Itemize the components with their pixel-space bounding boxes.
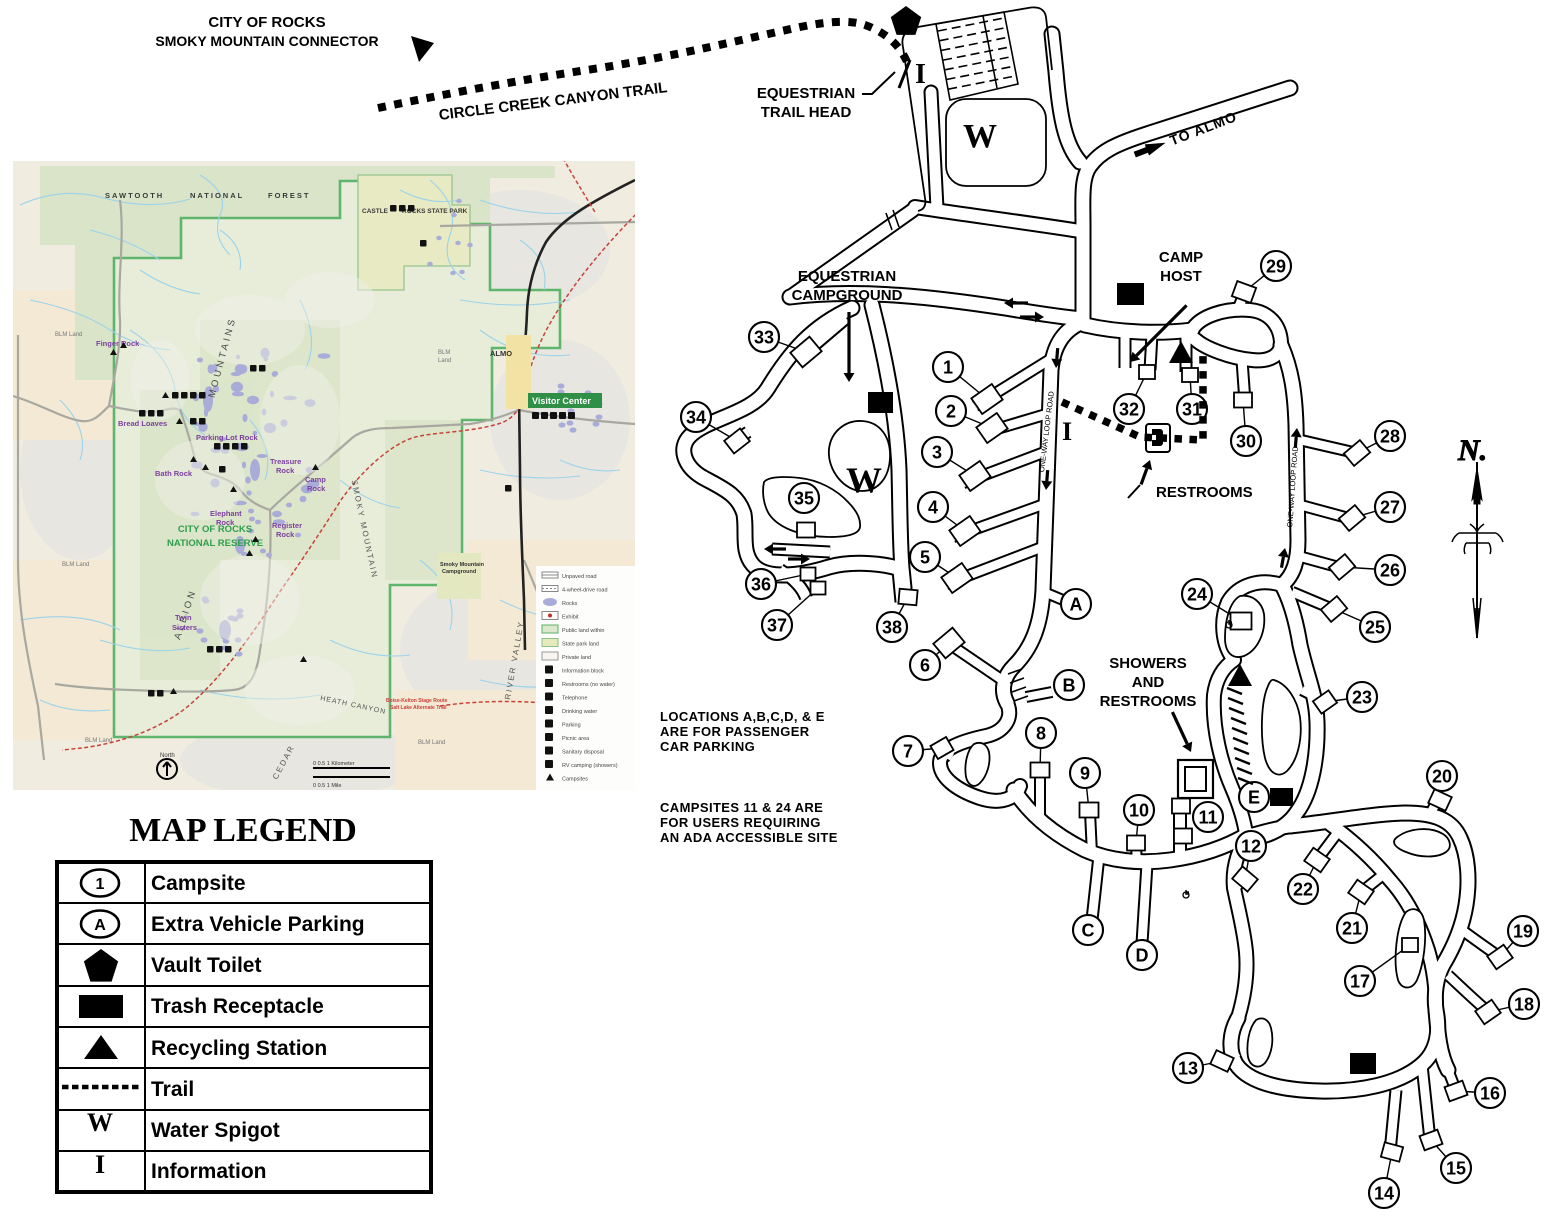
svg-text:A: A bbox=[1070, 595, 1083, 615]
svg-text:Parking: Parking bbox=[562, 723, 581, 729]
svg-text:Parking Lot Rock: Parking Lot Rock bbox=[196, 433, 259, 442]
svg-text:34: 34 bbox=[686, 408, 706, 428]
svg-text:33: 33 bbox=[754, 328, 774, 348]
svg-text:Campground: Campground bbox=[442, 569, 476, 575]
svg-text:Water Spigot: Water Spigot bbox=[151, 1119, 280, 1142]
svg-text:26: 26 bbox=[1380, 561, 1400, 581]
svg-text:Private land: Private land bbox=[562, 655, 591, 661]
svg-text:Information block: Information block bbox=[562, 669, 604, 675]
svg-text:9: 9 bbox=[1080, 764, 1090, 784]
svg-text:Rock: Rock bbox=[276, 530, 295, 539]
svg-text:State park land: State park land bbox=[562, 642, 599, 648]
svg-text:6: 6 bbox=[920, 656, 930, 676]
svg-text:Sanitary disposal: Sanitary disposal bbox=[562, 750, 604, 756]
svg-text:23: 23 bbox=[1352, 688, 1372, 708]
svg-text:Treasure: Treasure bbox=[270, 457, 301, 466]
svg-text:Smoky Mountain: Smoky Mountain bbox=[440, 562, 485, 568]
svg-text:I: I bbox=[915, 59, 926, 90]
svg-text:AN ADA ACCESSIBLE SITE: AN ADA ACCESSIBLE SITE bbox=[660, 830, 838, 845]
svg-text:Elephant: Elephant bbox=[210, 509, 242, 518]
svg-text:AND: AND bbox=[1132, 674, 1165, 691]
svg-text:Public land within: Public land within bbox=[562, 628, 605, 634]
svg-text:BLM: BLM bbox=[438, 350, 450, 356]
svg-text:SAWTOOTH: SAWTOOTH bbox=[105, 191, 164, 200]
svg-text:CITY OF ROCKS: CITY OF ROCKS bbox=[178, 524, 252, 535]
svg-text:CASTLE: CASTLE bbox=[362, 208, 389, 215]
svg-text:Telephone: Telephone bbox=[562, 696, 587, 702]
svg-text:Salt Lake Alternate Trail: Salt Lake Alternate Trail bbox=[390, 705, 447, 711]
svg-text:Register: Register bbox=[272, 521, 302, 530]
svg-text:10: 10 bbox=[1129, 801, 1149, 821]
svg-text:Rocks: Rocks bbox=[562, 601, 578, 607]
svg-text:Unpaved road: Unpaved road bbox=[562, 574, 597, 580]
svg-text:16: 16 bbox=[1480, 1084, 1500, 1104]
svg-text:Restrooms (no water): Restrooms (no water) bbox=[562, 682, 615, 688]
svg-text:37: 37 bbox=[767, 616, 787, 636]
svg-text:N.: N. bbox=[1457, 434, 1487, 467]
svg-text:C: C bbox=[1082, 921, 1095, 941]
svg-text:1: 1 bbox=[943, 358, 953, 378]
svg-text:Boise-Kelton Stage Route: Boise-Kelton Stage Route bbox=[386, 698, 448, 704]
svg-text:5: 5 bbox=[920, 548, 930, 568]
svg-text:Bath Rock: Bath Rock bbox=[155, 469, 193, 478]
svg-text:TRAIL HEAD: TRAIL HEAD bbox=[761, 104, 852, 121]
svg-text:12: 12 bbox=[1241, 837, 1261, 857]
svg-text:BLM Land: BLM Land bbox=[418, 740, 445, 746]
svg-text:14: 14 bbox=[1374, 1184, 1394, 1204]
svg-text:35: 35 bbox=[794, 489, 814, 509]
svg-text:BLM Land: BLM Land bbox=[85, 738, 112, 744]
svg-text:28: 28 bbox=[1380, 427, 1400, 447]
svg-text:W: W bbox=[963, 118, 997, 155]
svg-text:D: D bbox=[1136, 946, 1149, 966]
svg-text:4: 4 bbox=[928, 498, 938, 518]
svg-text:7: 7 bbox=[903, 742, 913, 762]
svg-text:B: B bbox=[1063, 676, 1076, 696]
svg-text:E: E bbox=[1248, 788, 1260, 808]
svg-text:13: 13 bbox=[1178, 1059, 1198, 1079]
svg-text:1: 1 bbox=[96, 876, 105, 893]
svg-text:CAR PARKING: CAR PARKING bbox=[660, 739, 755, 754]
svg-text:8: 8 bbox=[1036, 724, 1046, 744]
svg-text:W: W bbox=[87, 1108, 113, 1137]
svg-text:SHOWERS: SHOWERS bbox=[1109, 655, 1187, 672]
svg-text:21: 21 bbox=[1342, 919, 1362, 939]
svg-text:Finger Rock: Finger Rock bbox=[96, 339, 140, 348]
svg-text:Rock: Rock bbox=[307, 484, 326, 493]
svg-text:CITY OF ROCKS: CITY OF ROCKS bbox=[208, 14, 325, 31]
svg-text:Land: Land bbox=[438, 358, 451, 364]
svg-text:29: 29 bbox=[1266, 257, 1286, 277]
svg-text:FOR USERS REQUIRING: FOR USERS REQUIRING bbox=[660, 815, 821, 830]
svg-text:North: North bbox=[160, 753, 175, 759]
svg-text:0 0.5 1 Mile: 0 0.5 1 Mile bbox=[313, 783, 341, 789]
svg-text:38: 38 bbox=[882, 618, 902, 638]
svg-text:Twin: Twin bbox=[175, 613, 192, 622]
svg-text:Vault Toilet: Vault Toilet bbox=[151, 954, 261, 977]
svg-text:EQUESTRIAN: EQUESTRIAN bbox=[757, 85, 855, 102]
svg-text:W: W bbox=[846, 460, 882, 500]
svg-text:22: 22 bbox=[1293, 880, 1313, 900]
svg-text:36: 36 bbox=[751, 575, 771, 595]
svg-text:I: I bbox=[1062, 417, 1072, 446]
svg-text:BLM Land: BLM Land bbox=[62, 562, 89, 568]
svg-text:ARE FOR PASSENGER: ARE FOR PASSENGER bbox=[660, 724, 810, 739]
svg-text:2: 2 bbox=[946, 402, 956, 422]
svg-text:NATIONAL RESERVE: NATIONAL RESERVE bbox=[167, 538, 263, 549]
svg-text:FOREST: FOREST bbox=[268, 191, 310, 200]
svg-text:3: 3 bbox=[932, 443, 942, 463]
svg-text:32: 32 bbox=[1119, 400, 1139, 420]
svg-text:31: 31 bbox=[1182, 400, 1202, 420]
svg-text:11: 11 bbox=[1198, 808, 1217, 828]
svg-text:CAMPSITES 11 & 24 ARE: CAMPSITES 11 & 24 ARE bbox=[660, 800, 823, 815]
svg-text:25: 25 bbox=[1365, 618, 1385, 638]
svg-text:0 0.5 1 Kilometer: 0 0.5 1 Kilometer bbox=[313, 761, 355, 767]
svg-text:27: 27 bbox=[1380, 498, 1400, 518]
svg-text:HOST: HOST bbox=[1160, 268, 1202, 285]
svg-text:CAMP: CAMP bbox=[1159, 249, 1203, 266]
svg-text:Sisters: Sisters bbox=[172, 623, 197, 632]
svg-text:4-wheel-drive road: 4-wheel-drive road bbox=[562, 588, 608, 594]
svg-text:EQUESTRIAN: EQUESTRIAN bbox=[798, 268, 896, 285]
svg-text:BLM Land: BLM Land bbox=[55, 332, 82, 338]
svg-text:20: 20 bbox=[1432, 767, 1452, 787]
svg-text:A: A bbox=[94, 917, 106, 934]
svg-text:Drinking water: Drinking water bbox=[562, 709, 597, 715]
svg-text:Recycling Station: Recycling Station bbox=[151, 1037, 327, 1060]
svg-text:Rock: Rock bbox=[216, 518, 235, 527]
svg-text:Bread Loaves: Bread Loaves bbox=[118, 419, 167, 428]
svg-text:RV camping (showers): RV camping (showers) bbox=[562, 763, 618, 769]
svg-text:Rock: Rock bbox=[276, 466, 295, 475]
svg-text:CAMPGROUND: CAMPGROUND bbox=[792, 287, 903, 304]
svg-text:19: 19 bbox=[1513, 922, 1533, 942]
svg-text:Picnic area: Picnic area bbox=[562, 736, 590, 742]
svg-text:Exhibit: Exhibit bbox=[562, 615, 579, 621]
svg-text:ALMO: ALMO bbox=[490, 349, 512, 358]
svg-text:Trail: Trail bbox=[151, 1078, 194, 1101]
svg-text:Information: Information bbox=[151, 1160, 267, 1183]
svg-text:Camp: Camp bbox=[305, 475, 326, 484]
svg-text:24: 24 bbox=[1187, 585, 1207, 605]
svg-text:Extra Vehicle Parking: Extra Vehicle Parking bbox=[151, 913, 365, 936]
svg-text:RESTROOMS: RESTROOMS bbox=[1156, 484, 1253, 501]
svg-text:NATIONAL: NATIONAL bbox=[190, 191, 244, 200]
svg-text:SMOKY MOUNTAIN CONNECTOR: SMOKY MOUNTAIN CONNECTOR bbox=[155, 33, 378, 49]
svg-text:RESTROOMS: RESTROOMS bbox=[1100, 693, 1197, 710]
svg-text:LOCATIONS A,B,C,D, & E: LOCATIONS A,B,C,D, & E bbox=[660, 709, 825, 724]
svg-text:Campsite: Campsite bbox=[151, 872, 246, 895]
svg-text:18: 18 bbox=[1514, 995, 1534, 1015]
svg-text:17: 17 bbox=[1350, 972, 1370, 992]
svg-text:MAP LEGEND: MAP LEGEND bbox=[129, 812, 357, 849]
svg-text:30: 30 bbox=[1236, 432, 1256, 452]
svg-text:I: I bbox=[95, 1150, 105, 1179]
svg-text:Visitor Center: Visitor Center bbox=[532, 396, 591, 406]
svg-text:15: 15 bbox=[1446, 1159, 1466, 1179]
svg-text:Trash Receptacle: Trash Receptacle bbox=[151, 995, 324, 1018]
svg-text:Campsites: Campsites bbox=[562, 777, 588, 783]
